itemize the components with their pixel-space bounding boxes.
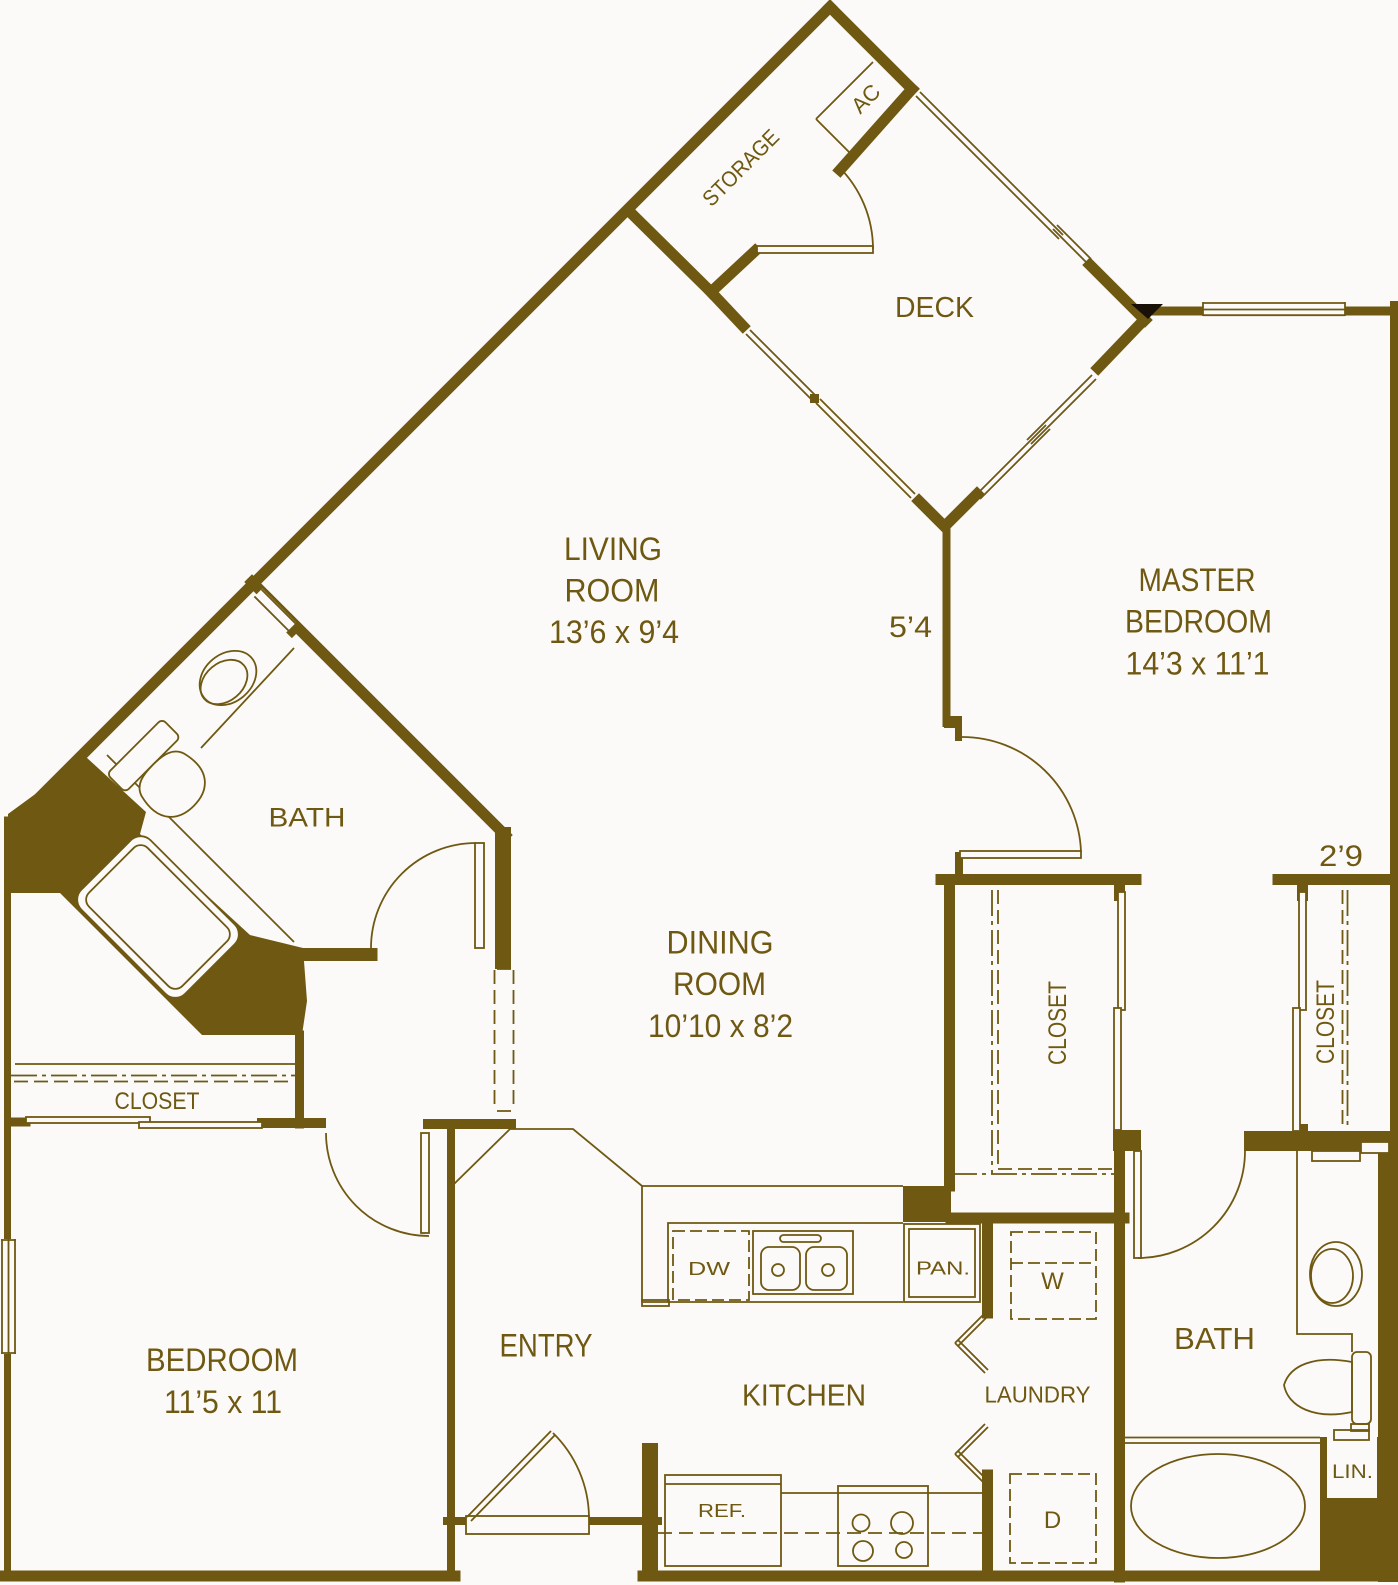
svg-text:10’10 x 8’2: 10’10 x 8’2 — [648, 1008, 793, 1044]
svg-text:ROOM: ROOM — [673, 966, 766, 1002]
svg-text:W: W — [1041, 1268, 1064, 1295]
svg-text:BATH: BATH — [1174, 1321, 1255, 1356]
svg-text:CLOSET: CLOSET — [1312, 980, 1340, 1064]
svg-text:DW: DW — [688, 1259, 730, 1279]
svg-text:D: D — [1044, 1507, 1061, 1534]
svg-text:BEDROOM: BEDROOM — [146, 1342, 298, 1378]
svg-text:BEDROOM: BEDROOM — [1125, 604, 1272, 640]
svg-text:LIN.: LIN. — [1332, 1462, 1373, 1483]
svg-text:KITCHEN: KITCHEN — [742, 1378, 866, 1413]
svg-text:CLOSET: CLOSET — [1044, 981, 1072, 1065]
svg-text:11’5 x 11: 11’5 x 11 — [164, 1384, 282, 1420]
svg-text:5’4: 5’4 — [889, 611, 932, 644]
svg-text:14’3 x 11’1: 14’3 x 11’1 — [1126, 646, 1270, 682]
svg-text:DECK: DECK — [895, 292, 975, 324]
svg-text:2’9: 2’9 — [1319, 840, 1363, 873]
svg-text:MASTER: MASTER — [1139, 562, 1256, 598]
svg-text:BATH: BATH — [269, 803, 346, 833]
svg-text:ENTRY: ENTRY — [500, 1328, 593, 1364]
svg-text:LIVING: LIVING — [564, 531, 662, 567]
svg-text:13’6 x 9’4: 13’6 x 9’4 — [549, 614, 679, 650]
svg-text:CLOSET: CLOSET — [115, 1088, 200, 1115]
svg-text:DINING: DINING — [667, 925, 774, 961]
svg-text:REF.: REF. — [698, 1501, 746, 1521]
svg-text:ROOM: ROOM — [565, 573, 660, 609]
svg-text:PAN.: PAN. — [916, 1259, 970, 1279]
svg-text:LAUNDRY: LAUNDRY — [985, 1382, 1091, 1408]
